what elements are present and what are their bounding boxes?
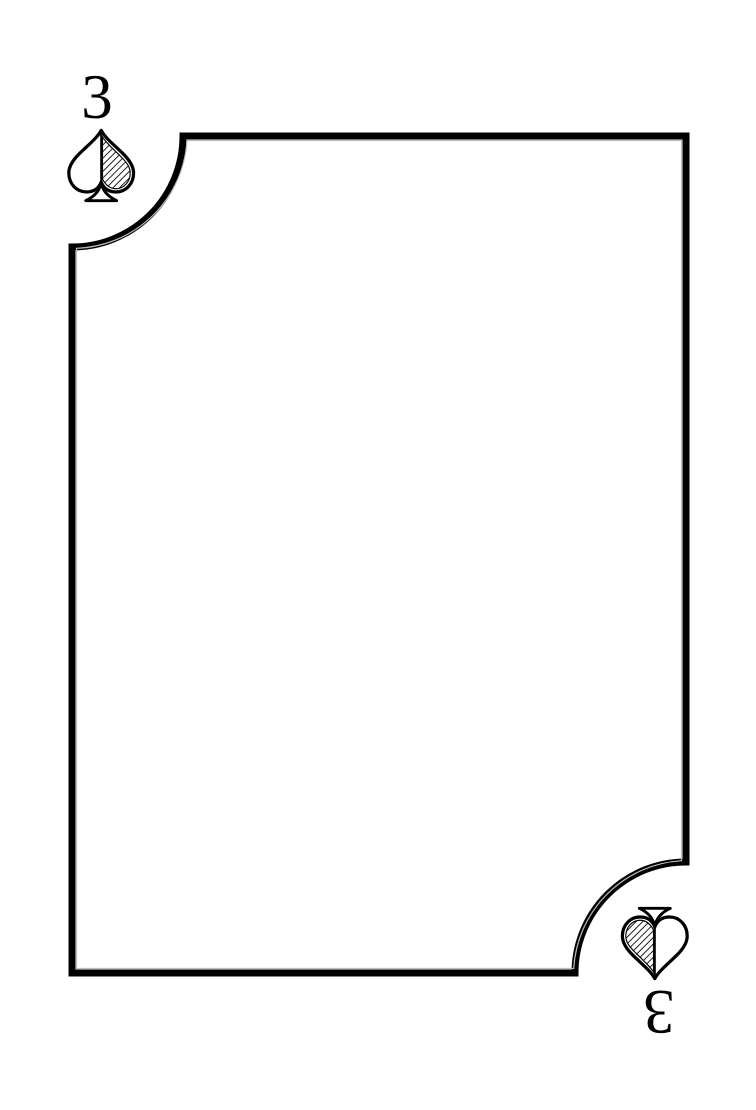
card-index-top-left: 3	[69, 62, 134, 201]
rank-label: 3	[643, 977, 675, 1047]
page: 3 3	[0, 0, 756, 1110]
rank-label: 3	[81, 62, 113, 132]
spade-icon	[69, 130, 134, 200]
spade-icon	[622, 908, 687, 978]
card-index-bottom-right: 3	[622, 908, 687, 1047]
card-outline[interactable]	[72, 136, 686, 973]
card-canvas: 3 3	[0, 0, 756, 1110]
